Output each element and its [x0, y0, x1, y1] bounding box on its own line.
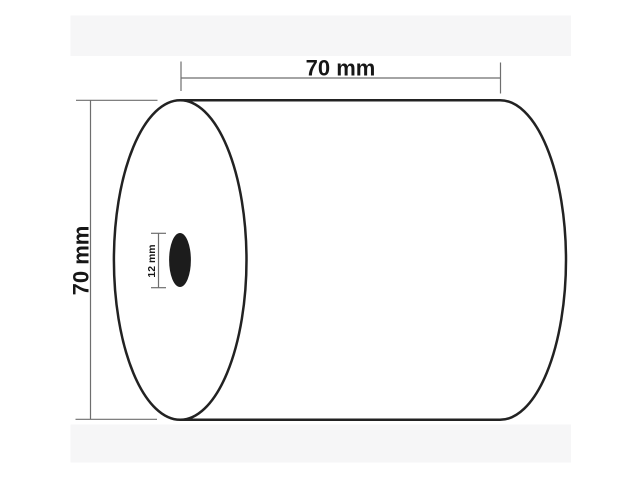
svg-text:12 mm: 12 mm — [146, 244, 158, 277]
svg-text:70 mm: 70 mm — [306, 56, 376, 81]
svg-text:70 mm: 70 mm — [69, 226, 94, 296]
